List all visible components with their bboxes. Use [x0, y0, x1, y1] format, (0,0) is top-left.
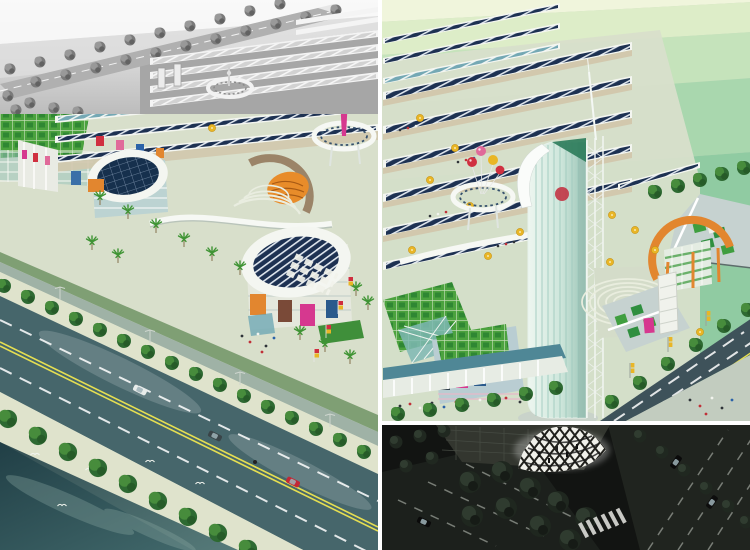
billboard-figure-3	[300, 304, 315, 326]
billboard-figure-2	[278, 300, 292, 322]
billboard-figure-1	[250, 294, 266, 315]
tower-red-sphere	[555, 187, 569, 201]
grayscale-aerial-panel	[0, 0, 378, 118]
night-street-panel	[382, 425, 750, 550]
architectural-rendering-collage	[0, 0, 750, 550]
white-tower-block	[658, 272, 678, 334]
main-color-panel	[0, 0, 750, 550]
glass-atrium	[248, 313, 275, 336]
vertical-divider	[378, 0, 382, 550]
billboard-orange	[88, 179, 104, 192]
left-color-half	[0, 84, 378, 550]
collage-svg	[0, 0, 750, 550]
billboard-figure-4	[326, 300, 338, 318]
billboard-blue	[71, 171, 81, 185]
horizontal-divider	[382, 421, 750, 425]
magenta-billboard	[643, 318, 654, 334]
motorbike	[253, 460, 257, 464]
